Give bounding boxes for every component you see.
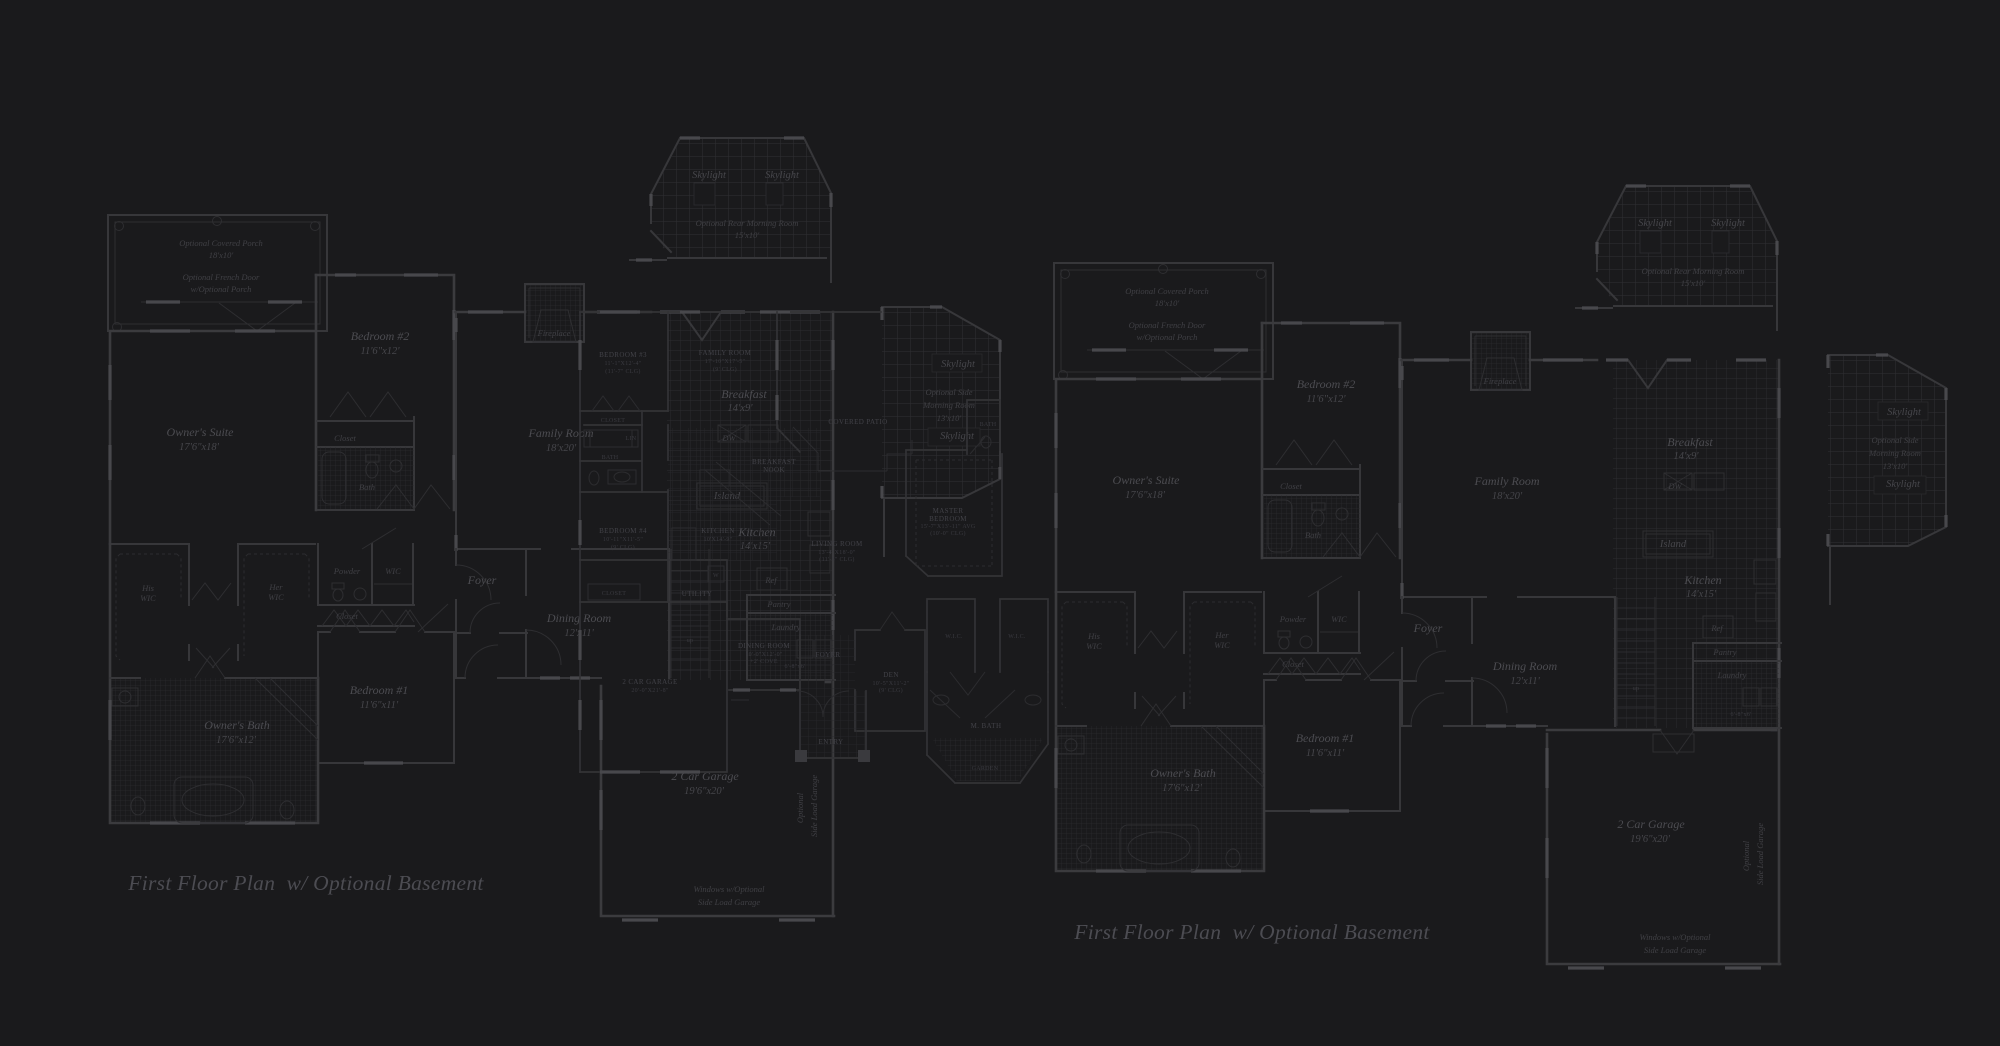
svg-text:Skylight: Skylight xyxy=(765,170,800,181)
svg-text:Ref: Ref xyxy=(764,575,778,585)
svg-text:BEDROOM: BEDROOM xyxy=(929,515,967,523)
svg-text:Breakfast: Breakfast xyxy=(721,387,767,401)
svg-text:CLOSET: CLOSET xyxy=(601,418,626,424)
svg-text:KITCHEN: KITCHEN xyxy=(701,527,735,535)
svg-text:Skylight: Skylight xyxy=(692,170,727,181)
svg-text:10'-5"X11'-2": 10'-5"X11'-2" xyxy=(872,681,909,687)
svg-text:17'6"x12': 17'6"x12' xyxy=(216,735,257,746)
svg-text:COVERED PATIO: COVERED PATIO xyxy=(828,418,887,426)
svg-text:(9' CLG): (9' CLG) xyxy=(713,366,737,373)
svg-text:Side Load Garage: Side Load Garage xyxy=(698,897,761,907)
svg-text:Skylight: Skylight xyxy=(940,431,975,442)
svg-text:His: His xyxy=(141,583,155,593)
svg-text:FAMILY ROOM: FAMILY ROOM xyxy=(699,349,752,357)
svg-text:Powder: Powder xyxy=(333,566,361,576)
svg-text:10'X14'-9": 10'X14'-9" xyxy=(704,537,733,543)
svg-text:Foyer: Foyer xyxy=(467,573,497,587)
svg-text:W.I.C.: W.I.C. xyxy=(1008,634,1026,640)
svg-text:Her: Her xyxy=(268,582,283,592)
svg-text:+2' COVE: +2' COVE xyxy=(750,659,778,665)
svg-text:Optional Side: Optional Side xyxy=(926,387,973,397)
svg-text:BATH: BATH xyxy=(602,455,619,461)
svg-text:up: up xyxy=(687,638,694,644)
svg-text:10'-11"X11'-5": 10'-11"X11'-5" xyxy=(603,537,643,543)
svg-text:13'-4"X18'-0": 13'-4"X18'-0" xyxy=(818,550,856,556)
svg-text:BREAKFAST: BREAKFAST xyxy=(752,458,796,466)
svg-text:10'-0"X12'-0": 10'-0"X12'-0" xyxy=(745,652,783,658)
svg-text:19'6"x20': 19'6"x20' xyxy=(684,786,725,797)
svg-text:DINING ROOM: DINING ROOM xyxy=(738,642,790,650)
svg-text:Side Load Garage: Side Load Garage xyxy=(809,775,819,838)
svg-text:Bedroom #2: Bedroom #2 xyxy=(351,329,410,343)
svg-text:15'-7"X13'-11" AVG: 15'-7"X13'-11" AVG xyxy=(921,524,976,530)
svg-text:BEDROOM #3: BEDROOM #3 xyxy=(599,351,647,359)
svg-text:2 CAR GARAGE: 2 CAR GARAGE xyxy=(622,678,677,686)
svg-text:(9' CLG): (9' CLG) xyxy=(879,687,903,694)
svg-text:18'x10': 18'x10' xyxy=(209,250,234,260)
svg-text:DEN: DEN xyxy=(883,671,899,679)
svg-text:Owner's Suite: Owner's Suite xyxy=(167,425,235,439)
svg-text:UTILITY: UTILITY xyxy=(682,590,712,598)
svg-text:FOYER: FOYER xyxy=(816,651,841,659)
svg-text:(11'-7" CLG): (11'-7" CLG) xyxy=(605,368,640,375)
svg-text:Optional French Door: Optional French Door xyxy=(183,272,260,282)
svg-text:WIC: WIC xyxy=(385,566,401,576)
svg-text:11'6"x11': 11'6"x11' xyxy=(360,700,399,711)
svg-text:GARDEN: GARDEN xyxy=(972,766,999,772)
svg-text:NOOK: NOOK xyxy=(763,466,785,474)
svg-text:20'-0"X21'-8": 20'-0"X21'-8" xyxy=(631,688,669,694)
svg-text:WIC: WIC xyxy=(268,592,284,602)
svg-text:W: W xyxy=(713,573,719,579)
svg-text:BEDROOM #4: BEDROOM #4 xyxy=(599,527,647,535)
svg-text:Windows w/Optional: Windows w/Optional xyxy=(693,884,765,894)
svg-text:Closet: Closet xyxy=(334,433,356,443)
svg-text:13'x10': 13'x10' xyxy=(937,413,962,423)
svg-text:MASTER: MASTER xyxy=(933,507,964,515)
svg-text:Optional: Optional xyxy=(795,792,805,823)
svg-text:Laundry: Laundry xyxy=(771,622,801,632)
svg-text:w/Optional Porch: w/Optional Porch xyxy=(191,284,252,294)
svg-text:Closet: Closet xyxy=(336,611,358,621)
svg-text:15'x10': 15'x10' xyxy=(735,230,760,240)
svg-text:Optional Rear Morning Room: Optional Rear Morning Room xyxy=(696,218,799,228)
svg-text:W.I.C.: W.I.C. xyxy=(945,634,963,640)
svg-text:M. BATH: M. BATH xyxy=(971,722,1002,730)
svg-text:LIN: LIN xyxy=(626,436,637,442)
svg-text:Skylight: Skylight xyxy=(941,359,976,370)
svg-text:11'-1"X12'-4": 11'-1"X12'-4" xyxy=(604,361,641,367)
svg-text:ENTRY: ENTRY xyxy=(819,738,844,746)
svg-text:WIC: WIC xyxy=(140,593,156,603)
svg-text:(11'-5" CLG): (11'-5" CLG) xyxy=(819,556,854,563)
svg-text:14'x9': 14'x9' xyxy=(728,403,754,414)
svg-text:CLOSET: CLOSET xyxy=(602,591,627,597)
svg-text:17'6"x18': 17'6"x18' xyxy=(179,442,220,453)
svg-text:17'-10"X17'-5": 17'-10"X17'-5" xyxy=(705,359,746,365)
svg-text:Fireplace: Fireplace xyxy=(537,328,571,338)
svg-text:11'6"x12': 11'6"x12' xyxy=(360,346,400,357)
svg-text:Dining Room: Dining Room xyxy=(546,611,612,625)
svg-text:18'x20': 18'x20' xyxy=(546,443,577,454)
svg-text:LIVING ROOM: LIVING ROOM xyxy=(811,540,863,548)
svg-text:Optional Covered Porch: Optional Covered Porch xyxy=(179,238,262,248)
svg-text:First Floor Plan w/ Optional: First Floor Plan w/ Optional Basement xyxy=(1073,920,1430,944)
svg-text:First Floor Plan w/ Optional: First Floor Plan w/ Optional Basement xyxy=(127,871,484,895)
svg-text:(10'-0" CLG): (10'-0" CLG) xyxy=(930,530,966,537)
svg-text:BATH: BATH xyxy=(980,422,997,428)
svg-text:Pantry: Pantry xyxy=(766,599,790,609)
svg-text:Bedroom #1: Bedroom #1 xyxy=(350,683,409,697)
svg-text:Bath: Bath xyxy=(359,482,375,492)
svg-text:Owner's Bath: Owner's Bath xyxy=(204,718,270,732)
svg-text:(9' CLG): (9' CLG) xyxy=(611,544,635,551)
